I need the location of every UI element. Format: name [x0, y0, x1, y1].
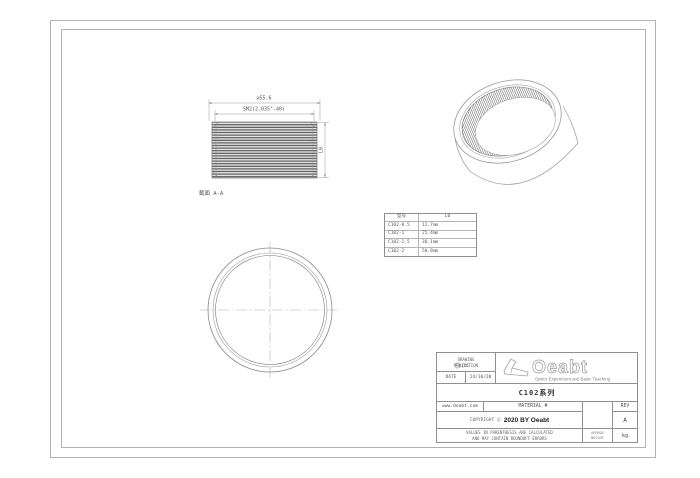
rev-label: REV	[613, 402, 637, 412]
website-text: www.Oeabt.com	[437, 402, 484, 412]
table-row: C102-1.5	[385, 239, 419, 247]
copyright-label: COPYRIGHT	[470, 418, 494, 423]
series-title: C102系列	[437, 384, 637, 402]
threaded-cylinder-section	[212, 122, 317, 178]
drawing-sheet: ∅55.6 SM2(2.035"-40) L0 截面 A-A	[0, 0, 700, 478]
material-label: MATERIAL #	[484, 402, 583, 412]
spec-col-length: L0	[419, 214, 476, 222]
weight-unit: kg	[613, 429, 637, 442]
table-row: 38.1mm	[419, 239, 476, 247]
copyright-text: 2020 BY Oeabt	[504, 417, 549, 424]
date-label: DATE	[437, 372, 466, 384]
copyright-symbol-icon: ©	[497, 417, 501, 424]
isometric-view	[440, 55, 600, 210]
table-row: 25.4mm	[419, 231, 476, 239]
projection-symbol-icon	[454, 362, 469, 369]
empty-cell	[583, 402, 613, 429]
projection-cell: DRAWING PROJECTION	[437, 353, 496, 372]
section-label: 截面 A-A	[199, 189, 224, 197]
logo-tagline: Optics Experiment and Basic Teaching	[535, 376, 611, 381]
centerlines	[200, 242, 340, 378]
logo-icon	[504, 359, 528, 376]
front-view	[195, 240, 350, 385]
table-row: C102-0.5	[385, 222, 419, 230]
disclaimer-line2: AND MAY CONTAIN ROUNDOFF ERRORS	[472, 436, 547, 441]
dim-height-label: L0	[319, 147, 325, 153]
copyright-cell: COPYRIGHT © 2020 BY Oeabt	[437, 412, 583, 429]
approx-label-line2: WEIGHT	[591, 436, 604, 440]
side-section-view: ∅55.6 SM2(2.035"-40) L0 截面 A-A	[190, 85, 345, 200]
table-row: 12.7mm	[419, 222, 476, 230]
date-value: 14/10/20	[466, 372, 496, 384]
dim-thread-label: SM2(2.035"-40)	[243, 107, 285, 113]
rev-value: A	[613, 412, 637, 429]
disclaimer-cell: VALUES IN PARENTHESIS ARE CALCULATED AND…	[437, 429, 583, 442]
table-row: C102-1	[385, 231, 419, 239]
spec-col-model: 型号	[385, 214, 419, 222]
table-row: 50.8mm	[419, 248, 476, 256]
approx-weight-cell: APPROX WEIGHT	[583, 429, 613, 442]
spec-table: 型号 L0 C102-0.5 12.7mm C102-1 25.4mm C102…	[384, 213, 477, 257]
logo-text: Oeabt	[532, 357, 588, 377]
title-block: DRAWING PROJECTION Oeabt Optics Experime…	[436, 352, 638, 443]
table-row: C102-2	[385, 248, 419, 256]
oeabt-logo: Oeabt Optics Experiment and Basic Teachi…	[501, 354, 633, 383]
dim-outer-diameter-label: ∅55.6	[256, 96, 271, 102]
logo-cell: Oeabt Optics Experiment and Basic Teachi…	[496, 353, 637, 384]
